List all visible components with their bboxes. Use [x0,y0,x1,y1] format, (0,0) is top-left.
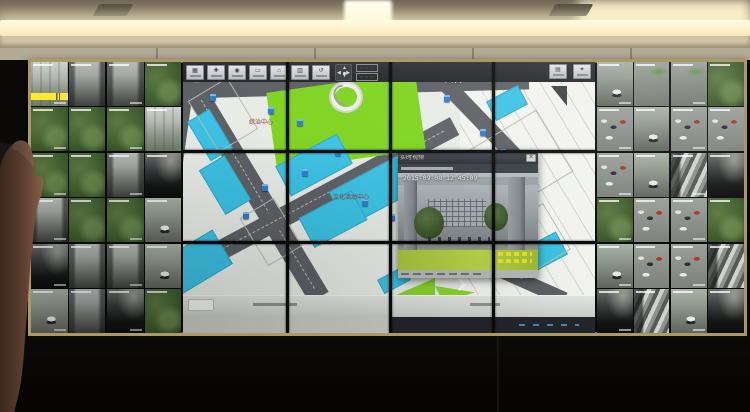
camera-feed[interactable] [69,62,106,106]
monitor-bezel [183,150,595,153]
tool-caption-smudge [211,75,222,77]
osd-text-overlay [693,193,705,195]
air-vent [93,4,134,16]
osd-text-overlay [130,147,142,149]
wall-monitor [671,62,744,151]
camera-marker-icon[interactable] [480,129,486,136]
map-tool-button[interactable]: ▭ [249,65,267,80]
osd-text-overlay [147,200,167,202]
camera-feed[interactable] [107,107,144,151]
ceiling-fascia [0,36,750,48]
camera-feed[interactable] [145,62,182,106]
layer-tab[interactable] [188,299,214,311]
popup-statusbar [398,270,538,278]
tool-icon: ⌂ [277,68,281,74]
camera-feed[interactable] [107,198,144,242]
osd-text-overlay [147,246,167,248]
osd-text-overlay [636,246,656,248]
tool-caption-smudge [232,75,243,77]
camera-feed[interactable] [597,153,633,197]
camera-feed[interactable] [145,107,182,151]
osd-text-overlay [71,155,91,157]
tool-icon: ▥ [297,68,303,74]
osd-text-overlay [599,109,619,111]
camera-feed[interactable] [708,289,744,333]
osd-text-overlay [673,64,693,66]
monitor-bezel [286,62,289,333]
osd-text-overlay [619,238,630,240]
camera-marker-icon[interactable] [262,184,268,191]
camera-feed[interactable] [69,244,106,288]
camera-feed[interactable] [671,62,707,106]
popup-titlebar[interactable]: 实时视频 × [398,152,538,164]
wall-monitor [107,153,181,242]
camera-feed[interactable] [634,244,670,288]
osd-text-overlay [673,155,693,157]
wall-monitor [671,153,744,242]
plaza-path [329,80,359,109]
pan-left-icon[interactable]: ◀ [337,71,341,76]
wall-monitor [671,244,744,333]
osd-text-overlay [147,291,167,293]
osd-text-overlay [619,284,630,286]
camera-feed[interactable] [597,289,633,333]
osd-text-overlay [109,246,129,248]
gis-map-screen: 入口 综治中心文化活动中心服务中心 ▦✚◉▭⌂▥↺ ▲ ▼ ◀ ▶ [183,62,595,333]
close-icon[interactable]: × [526,154,536,162]
camera-marker-icon[interactable] [243,212,249,219]
video-wall: 入口 综治中心文化活动中心服务中心 ▦✚◉▭⌂▥↺ ▲ ▼ ◀ ▶ [28,59,747,336]
osd-text-overlay [71,64,91,66]
camera-feed[interactable] [708,153,744,197]
camera-feed[interactable] [597,62,633,106]
tool-caption-smudge [190,75,201,77]
map-tool-button[interactable]: ◉ [228,65,246,80]
osd-text-overlay [693,147,705,149]
photographer-arm [0,137,56,412]
camera-marker-icon[interactable] [302,169,308,176]
map-tool-button[interactable]: ✦ [573,64,591,79]
camera-feed[interactable] [107,153,144,197]
osd-yellow-text [498,252,532,256]
wall-monitor [597,62,669,151]
osd-text-overlay [693,284,705,286]
popup-infobar [398,164,538,173]
osd-text-overlay [71,291,91,293]
room-shadow [0,336,750,412]
tool-icon: ↺ [318,68,323,74]
tool-icon: ✦ [579,67,584,73]
wall-monitor [107,62,181,151]
camera-feed[interactable] [634,198,670,242]
tool-caption-smudge [553,74,564,76]
tool-icon: ▭ [255,68,261,74]
osd-text-overlay [599,246,619,248]
toolbar-right-group: ▤✦ [546,64,591,79]
camera-feed[interactable] [671,107,707,151]
osd-text-overlay [130,238,142,240]
pan-center-dot[interactable] [343,72,346,75]
osd-yellow-text [498,259,532,263]
osd-text-overlay [693,102,705,104]
camera-feed[interactable] [145,153,182,197]
air-vent [549,4,594,16]
osd-text-overlay [673,291,693,293]
tool-caption-smudge [253,75,264,77]
osd-text-overlay [109,291,129,293]
camera-marker-icon[interactable] [444,95,450,102]
tool-icon: ◉ [234,68,239,74]
osd-text-overlay [130,193,142,195]
camera-feed[interactable] [634,107,670,151]
map-dark-wedge [551,86,567,106]
camera-feed[interactable] [69,107,106,151]
cove-light-strip [0,20,750,36]
wall-monitor [107,244,181,333]
osd-text-overlay [636,155,656,157]
osd-text-overlay [636,291,656,293]
osd-text-overlay [147,109,167,111]
tool-caption-smudge [274,75,285,77]
map-place-label: 综治中心 [249,120,273,127]
camera-feed[interactable] [597,244,633,288]
osd-text-overlay [619,329,630,331]
camera-feed[interactable] [671,289,707,333]
camera-feed[interactable] [671,153,707,197]
camera-feed[interactable] [597,198,633,242]
camera-marker-icon[interactable] [210,94,216,101]
control-room-scene: 入口 综治中心文化活动中心服务中心 ▦✚◉▭⌂▥↺ ▲ ▼ ◀ ▶ [0,0,750,412]
toolbar-mini-buttons [356,64,378,81]
map-plaza-circle [329,81,363,113]
camera-feed[interactable] [69,153,106,197]
camera-marker-icon[interactable] [297,119,303,126]
camera-feed[interactable] [69,289,106,333]
map-tool-button[interactable]: ▤ [549,64,567,79]
osd-text-overlay [673,109,693,111]
osd-text-overlay [673,200,693,202]
camera-feed[interactable] [107,244,144,288]
camera-marker-icon[interactable] [268,107,274,114]
osd-text-overlay [599,200,619,202]
camera-feed[interactable] [671,244,707,288]
osd-text-overlay [33,64,53,66]
live-video-popup: 实时视频 × [398,152,538,278]
camera-feed[interactable] [145,289,182,333]
osd-text-overlay [636,109,656,111]
camera-feed[interactable] [634,153,670,197]
map-tool-button[interactable]: ▦ [186,65,204,80]
osd-text-overlay [710,64,730,66]
camera-feed[interactable] [708,198,744,242]
osd-text-overlay [599,155,619,157]
osd-text-overlay [130,329,142,331]
camera-feed[interactable] [671,198,707,242]
video-timestamp: 2015-09-08 12:45:09 [403,175,477,182]
map-tool-button[interactable]: ▥ [291,65,309,80]
osd-text-overlay [130,102,142,104]
osd-text-overlay [619,193,630,195]
tool-icon: ✚ [213,68,218,74]
osd-text-overlay [710,109,730,111]
osd-text-overlay [710,155,730,157]
camera-feed[interactable] [634,289,670,333]
osd-text-overlay [599,64,619,66]
osd-text-overlay [109,64,129,66]
camera-feed[interactable] [107,62,144,106]
osd-text-overlay [710,200,730,202]
gate-pillar [508,177,525,257]
camera-feed[interactable] [145,198,182,242]
camera-feed[interactable] [145,244,182,288]
wall-section-right [597,62,744,333]
map-tool-button[interactable]: ✚ [207,65,225,80]
osd-text-overlay [147,64,167,66]
osd-text-overlay [147,155,167,157]
osd-text-overlay [71,200,91,202]
osd-text-overlay [636,200,656,202]
pan-right-icon[interactable]: ▶ [346,71,350,76]
map-arrow [453,278,466,291]
osd-text-overlay [693,329,705,331]
tree [414,207,444,239]
osd-text-overlay [710,291,730,293]
statusbar-text-smudge [253,303,297,306]
toolbar-buttons: ▦✚◉▭⌂▥↺ [183,65,330,80]
osd-text-overlay [673,246,693,248]
camera-feed[interactable] [597,107,633,151]
osd-text-overlay [54,102,66,104]
mini-button[interactable] [356,64,378,72]
pan-control[interactable]: ▲ ▼ ◀ ▶ [335,64,352,81]
monitor-bezel [389,62,392,333]
camera-feed[interactable] [634,62,670,106]
monitor-bezel [183,241,595,244]
camera-feed[interactable] [107,289,144,333]
infobar-text-smudge [401,167,453,170]
tool-caption-smudge [295,75,306,77]
popup-title: 实时视频 [400,155,526,161]
map-place-label: 文化活动中心 [333,195,369,202]
camera-feed[interactable] [31,62,68,106]
osd-text-overlay [33,109,53,111]
mini-button[interactable] [356,73,378,81]
osd-text-overlay [109,155,129,157]
osd-text-overlay [71,109,91,111]
tool-caption-smudge [316,75,327,77]
camera-feed[interactable] [708,107,744,151]
osd-text-overlay [109,109,129,111]
osd-text-overlay [619,102,630,104]
wall-monitor [597,244,669,333]
tree [484,203,508,231]
osd-text-overlay [619,147,630,149]
tool-icon: ▦ [192,68,198,74]
tool-caption-smudge [577,74,588,76]
map-tool-button[interactable]: ↺ [312,65,330,80]
statusbar-text-smudge [470,303,500,306]
osd-text-overlay [599,291,619,293]
camera-feed[interactable] [708,244,744,288]
osd-text-overlay [130,284,142,286]
tool-icon: ▤ [555,67,561,73]
camera-feed[interactable] [69,198,106,242]
osd-text-overlay [710,246,730,248]
osd-text-overlay [636,64,656,66]
video-wall-grid: 入口 综治中心文化活动中心服务中心 ▦✚◉▭⌂▥↺ ▲ ▼ ◀ ▶ [31,62,744,333]
osd-text-overlay [693,238,705,240]
wall-monitor [597,153,669,242]
osd-text-overlay [109,200,129,202]
popup-video-feed: 2015-09-08 12:45:09 [398,173,538,270]
camera-feed[interactable] [708,62,744,106]
monitor-bezel [492,62,495,333]
osd-text-overlay [71,246,91,248]
